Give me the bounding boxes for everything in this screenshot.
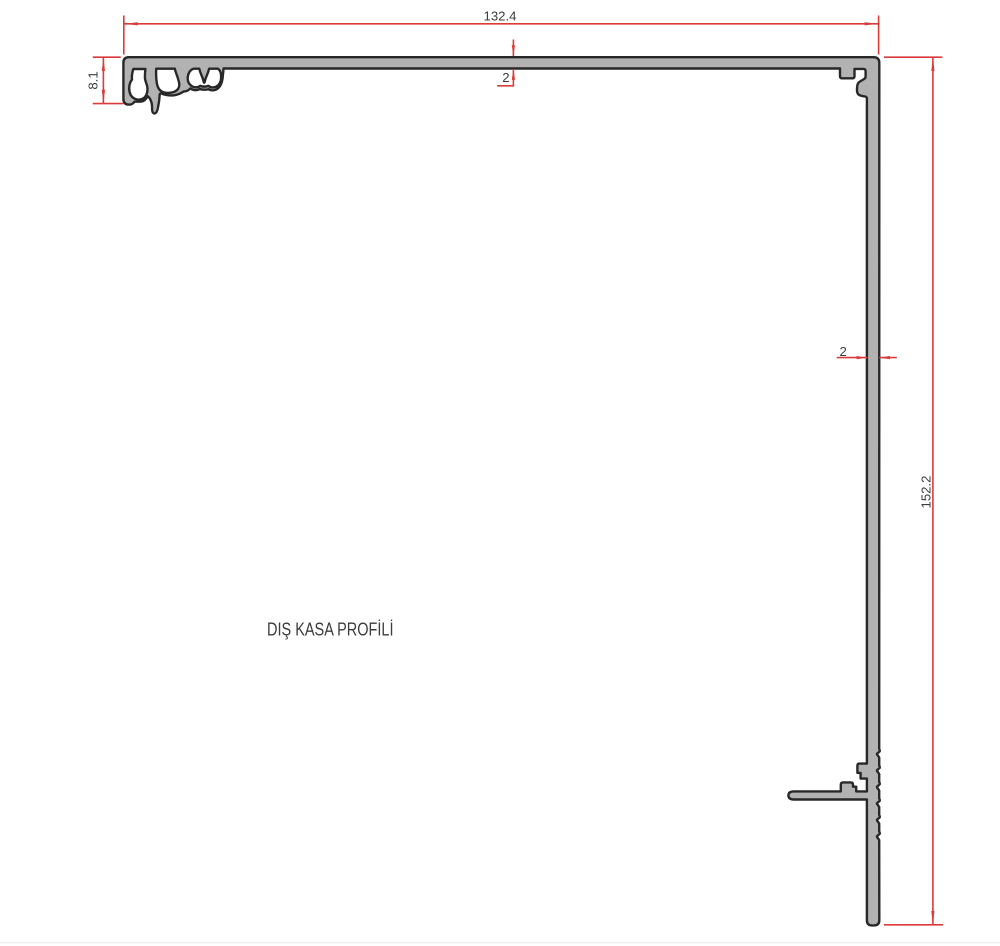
svg-text:152.2: 152.2 [918, 475, 933, 508]
svg-text:2: 2 [840, 344, 847, 359]
svg-text:DIŞ KASA PROFİLİ: DIŞ KASA PROFİLİ [267, 620, 394, 640]
svg-text:8.1: 8.1 [85, 71, 100, 89]
svg-text:2: 2 [502, 70, 509, 85]
svg-text:132.4: 132.4 [483, 9, 516, 24]
